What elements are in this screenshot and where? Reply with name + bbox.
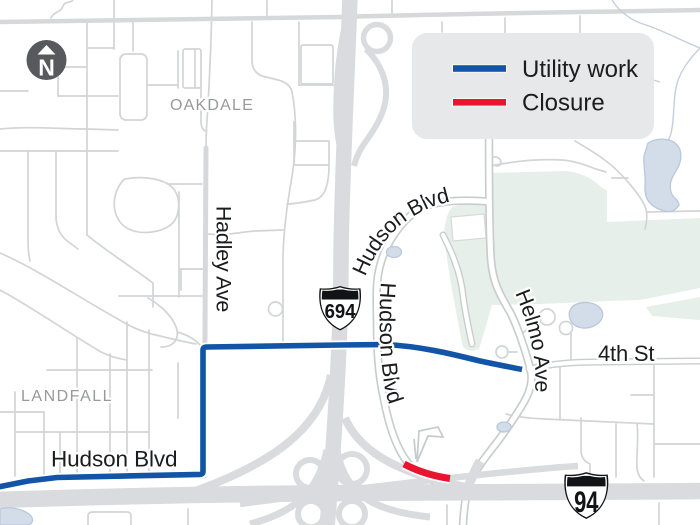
svg-text:OAKDALE: OAKDALE — [170, 97, 254, 114]
svg-text:94: 94 — [574, 486, 599, 519]
svg-text:Closure: Closure — [522, 90, 605, 117]
svg-text:N: N — [38, 55, 55, 81]
svg-text:Utility work: Utility work — [522, 56, 639, 83]
svg-text:4th St: 4th St — [598, 341, 654, 366]
svg-text:694: 694 — [325, 300, 356, 323]
svg-text:Hudson Blvd: Hudson Blvd — [51, 447, 177, 472]
svg-text:LANDFALL: LANDFALL — [21, 388, 113, 405]
svg-text:Hadley Ave: Hadley Ave — [212, 206, 236, 312]
